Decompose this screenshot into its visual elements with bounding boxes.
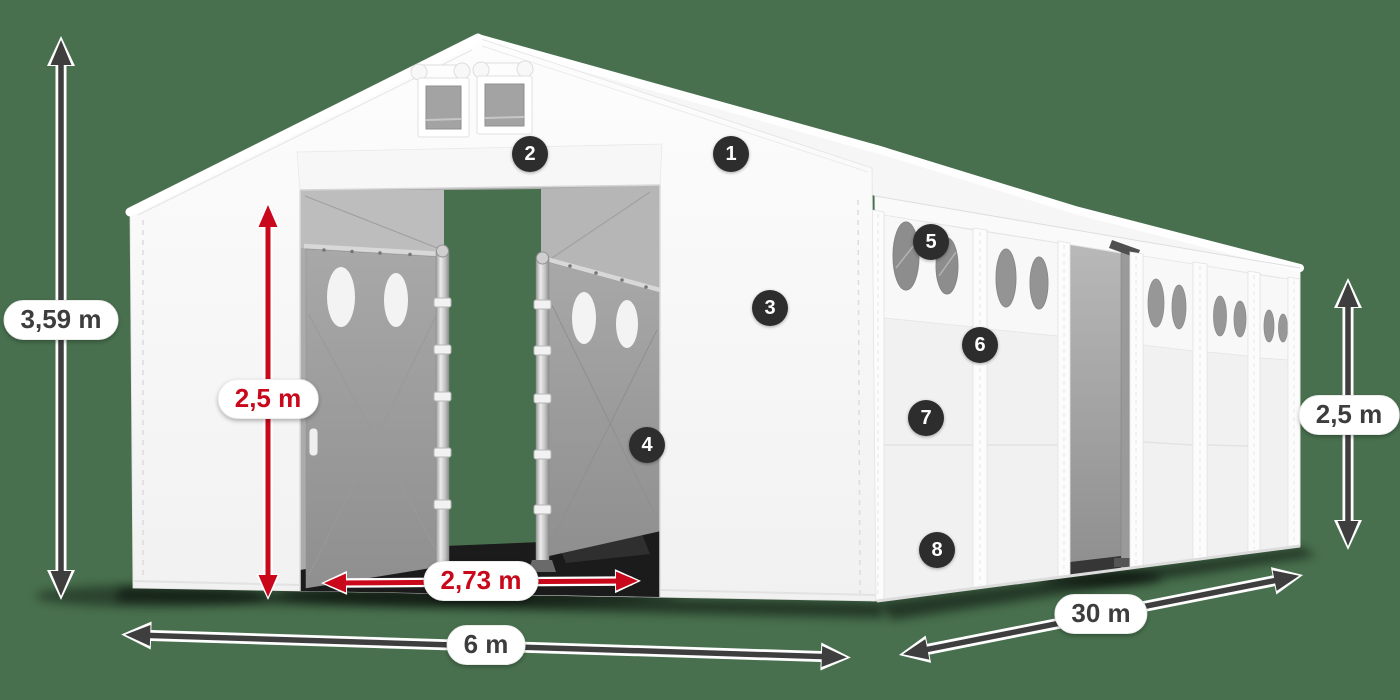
vent-window-right: [473, 61, 533, 134]
marker-2[interactable]: 2: [512, 136, 548, 172]
tent-dimension-diagram: 3,59 m 2,5 m 2,73 m 6 m 30 m 2,5 m 1 2 3…: [0, 0, 1400, 700]
tent-illustration: [0, 0, 1400, 700]
marker-3[interactable]: 3: [752, 290, 788, 326]
entrance-height-label: 2,5 m: [218, 379, 319, 419]
marker-4[interactable]: 4: [629, 427, 665, 463]
vent-window-left: [411, 63, 470, 137]
door-handle: [309, 428, 318, 456]
open-passage: [444, 189, 541, 549]
entrance-width-label: 2,73 m: [424, 561, 539, 601]
door-leaf-right: [546, 259, 660, 556]
marker-6[interactable]: 6: [962, 327, 998, 363]
side-entrance-opening: [1070, 240, 1140, 576]
total-height-label: 3,59 m: [4, 300, 119, 340]
marker-1[interactable]: 1: [713, 136, 749, 172]
length-label: 30 m: [1054, 594, 1147, 634]
marker-7[interactable]: 7: [908, 400, 944, 436]
front-entrance-interior: [300, 185, 660, 597]
width-label: 6 m: [447, 625, 526, 665]
side-height-label: 2,5 m: [1299, 395, 1400, 435]
door-leaf-left: [304, 246, 443, 588]
marker-5[interactable]: 5: [913, 224, 949, 260]
marker-8[interactable]: 8: [919, 532, 955, 568]
